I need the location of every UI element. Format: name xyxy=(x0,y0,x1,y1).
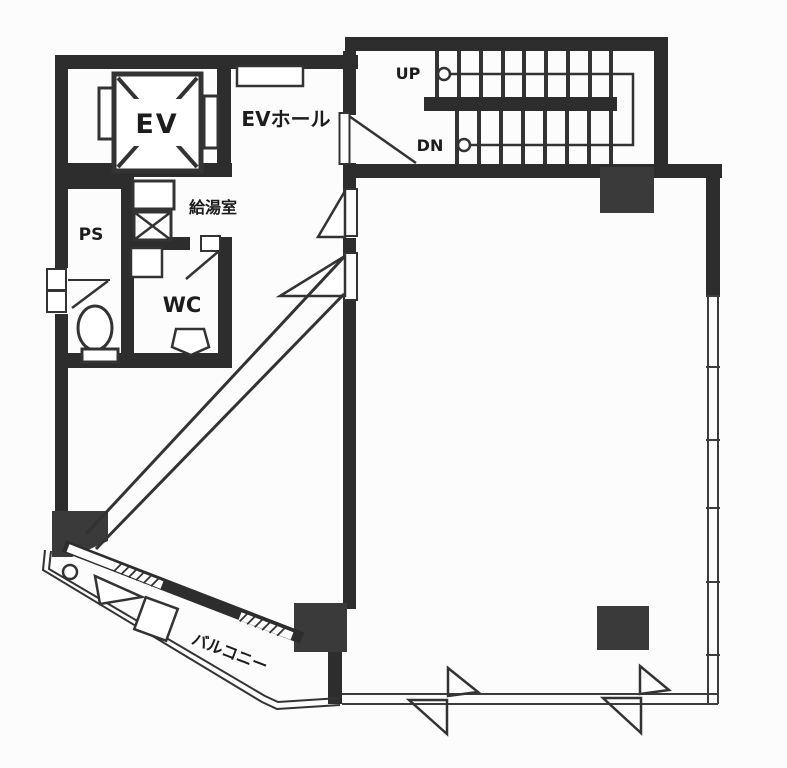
balcony-partition-icon xyxy=(95,576,142,604)
window-symbol-2-upper xyxy=(640,666,669,694)
wc-corner-basin xyxy=(172,329,209,355)
toilet-bowl-icon xyxy=(78,306,112,350)
elevator: EV xyxy=(99,74,218,171)
column-balcony-end xyxy=(294,603,347,652)
wall-right-stairs xyxy=(654,37,668,178)
ps-label: PS xyxy=(79,225,104,245)
wall-evhall-stairs xyxy=(343,51,356,115)
stall-door-swing xyxy=(72,281,108,308)
stall-window-sash-1 xyxy=(47,269,66,290)
balcony-label: バルコニー xyxy=(189,629,270,675)
wc-door-leaf xyxy=(201,236,220,251)
toilet-tank-icon xyxy=(82,349,118,362)
stairwell: UP DN xyxy=(340,51,634,164)
ev-label: EV xyxy=(135,109,178,140)
ev-hall: EVホール xyxy=(237,66,331,131)
dn-start-circle xyxy=(458,139,470,151)
wall-ps-top xyxy=(55,177,123,189)
wall-bottom-stairs xyxy=(345,164,722,178)
wall-top-ev-block xyxy=(55,55,358,69)
wc-door-swing xyxy=(186,251,219,279)
wall-main-left-seg3 xyxy=(343,299,356,609)
dn-label: DN xyxy=(417,136,444,155)
balcony-drain-icon xyxy=(63,565,77,579)
column-main-room xyxy=(597,606,649,650)
balcony-hatch-box xyxy=(134,597,178,641)
wall-wc-right xyxy=(218,237,232,368)
stair-treads-lower xyxy=(457,111,611,164)
column-below-stairs xyxy=(600,167,654,213)
window-symbol-1-upper xyxy=(448,668,478,696)
ev-hall-transom xyxy=(237,66,303,86)
ev-rail-left xyxy=(99,88,113,139)
wall-top-stairs xyxy=(345,37,668,51)
stair-door-leaf xyxy=(340,113,350,164)
bottom-window-symbols xyxy=(409,666,669,734)
window-walls xyxy=(342,296,720,704)
wall-right-main-upper xyxy=(706,164,720,296)
ev-rail-right xyxy=(204,96,218,148)
kitchenette: 給湯室 xyxy=(133,181,237,240)
stair-door-swing xyxy=(349,116,416,163)
up-label: UP xyxy=(396,64,421,83)
window-symbol-1-lower xyxy=(409,700,447,734)
up-start-circle xyxy=(438,68,450,80)
stall-window-sash-2 xyxy=(47,291,66,312)
floor-plan-page: UP DN EV EVホール 給湯室 PS WC xyxy=(0,0,787,768)
ev-hall-label: EVホール xyxy=(241,107,330,131)
wc-basin-box xyxy=(131,248,162,277)
wall-main-left-seg1 xyxy=(343,163,356,190)
wc-label: WC xyxy=(163,293,202,317)
kitchenette-sink xyxy=(133,181,174,209)
floor-plan-svg: UP DN EV EVホール 給湯室 PS WC xyxy=(0,0,787,768)
kitchenette-label: 給湯室 xyxy=(189,198,237,217)
stair-middle-landing-bar xyxy=(424,97,617,111)
door1-swing-triangle xyxy=(318,191,345,237)
